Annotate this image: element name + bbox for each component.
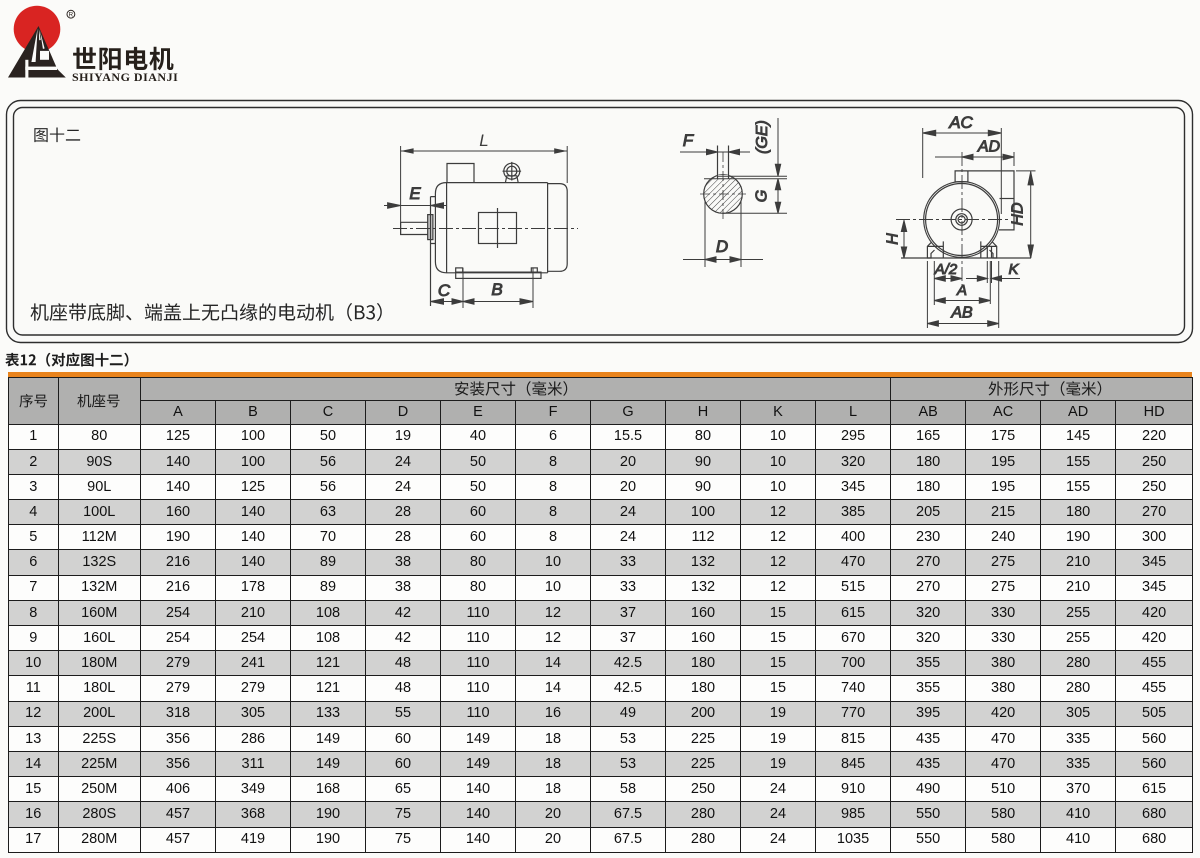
svg-text:AC: AC [948,113,973,132]
svg-text:K: K [1008,261,1019,278]
svg-text:B: B [491,280,502,299]
svg-text:A: A [956,282,967,299]
svg-text:AB: AB [950,305,973,322]
svg-text:F: F [683,131,695,150]
svg-text:H: H [885,233,902,245]
svg-text:E: E [409,184,421,203]
svg-text:AD: AD [977,139,1001,156]
svg-text:D: D [716,237,728,256]
svg-text:A/2: A/2 [934,261,958,278]
svg-text:G: G [754,190,771,202]
svg-text:L: L [479,131,488,150]
svg-text:HD: HD [1010,202,1027,226]
svg-text:C: C [438,281,451,300]
svg-text:(GE): (GE) [754,120,771,154]
